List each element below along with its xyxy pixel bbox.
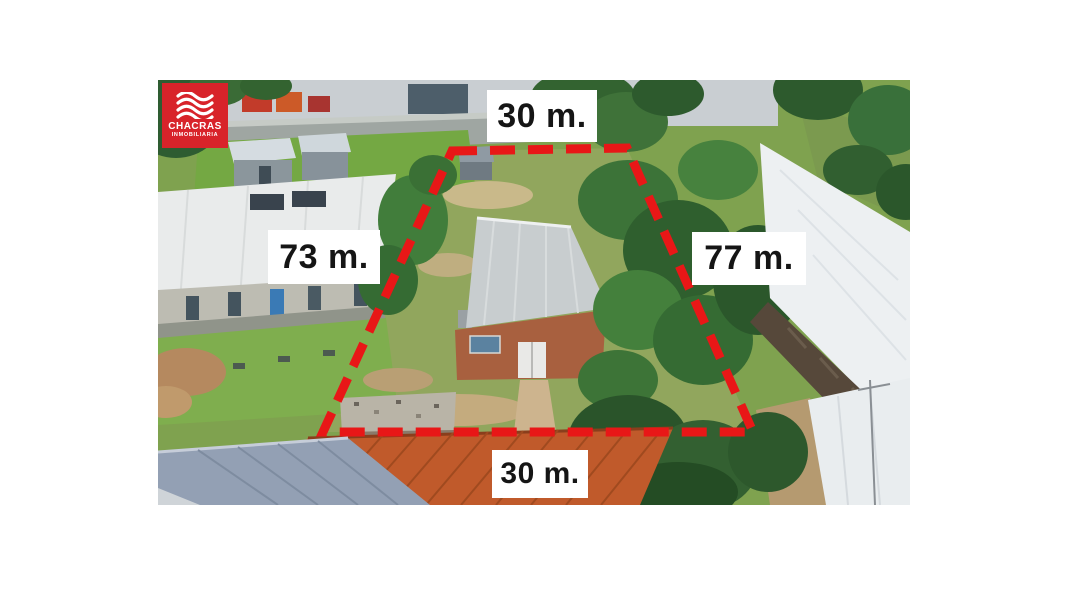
- measurement-label-right: 77 m.: [692, 232, 806, 285]
- waves-icon: [176, 92, 214, 119]
- listing-image: 30 m. 73 m. 77 m. 30 m. CHACRAS INMOBILI…: [0, 0, 1080, 608]
- logo-subtitle: INMOBILIARIA: [172, 132, 219, 139]
- aerial-photo: 30 m. 73 m. 77 m. 30 m.: [158, 80, 910, 505]
- property-boundary-overlay: [158, 80, 910, 505]
- measurement-label-bottom: 30 m.: [492, 450, 588, 498]
- measurement-label-left: 73 m.: [268, 230, 380, 284]
- logo-title: CHACRAS: [168, 122, 222, 133]
- measurement-label-top: 30 m.: [487, 90, 597, 142]
- property-boundary-line: [323, 148, 753, 432]
- agency-logo: CHACRAS INMOBILIARIA: [162, 83, 228, 148]
